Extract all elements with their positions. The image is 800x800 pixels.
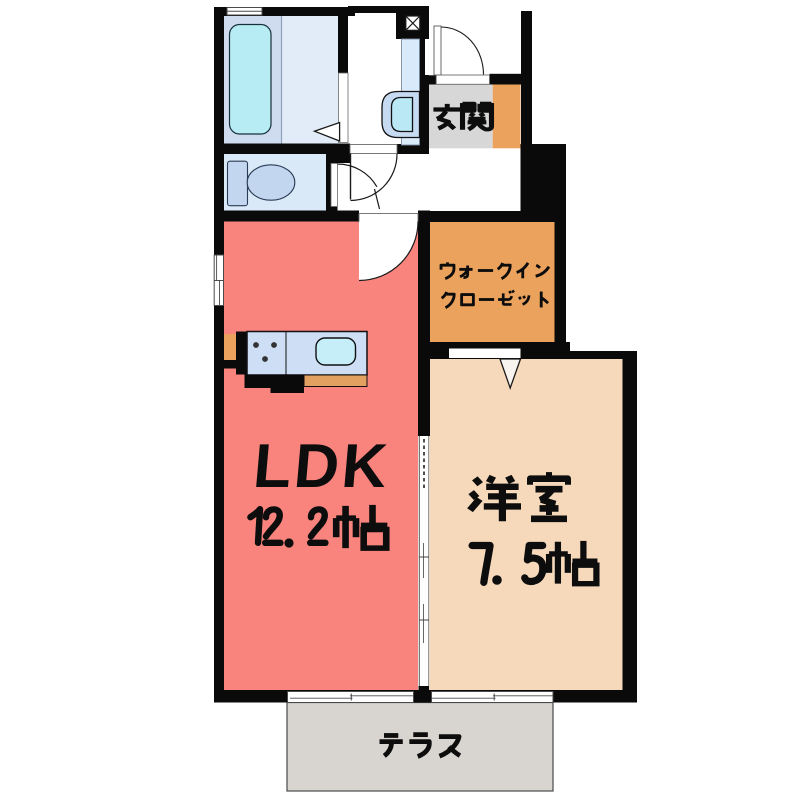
- svg-text:LDK: LDK: [251, 432, 390, 501]
